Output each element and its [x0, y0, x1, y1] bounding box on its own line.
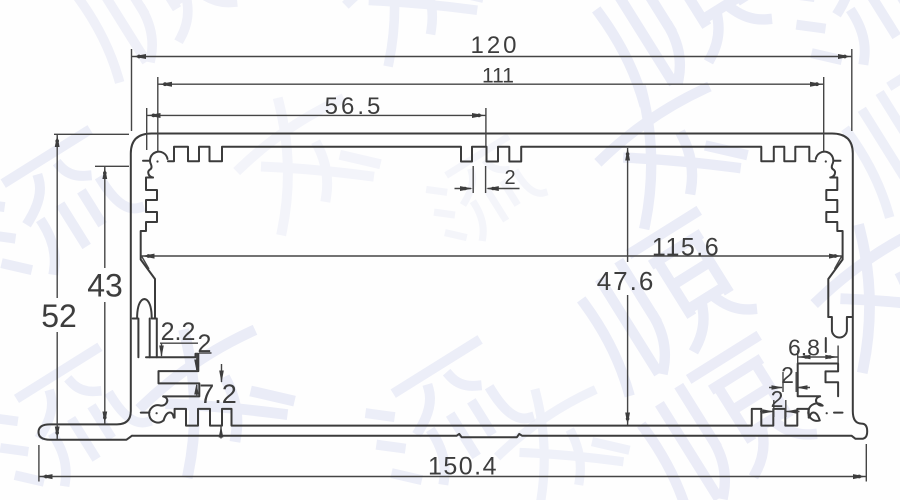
svg-text:111: 111	[482, 65, 514, 88]
svg-text:150.4: 150.4	[428, 453, 498, 481]
svg-text:6.8: 6.8	[788, 335, 820, 361]
svg-text:2: 2	[198, 330, 212, 358]
svg-text:52: 52	[41, 298, 77, 334]
svg-text:7.2: 7.2	[199, 379, 237, 409]
svg-text:47.6: 47.6	[597, 266, 656, 296]
svg-text:43: 43	[87, 268, 123, 304]
svg-text:115.6: 115.6	[652, 234, 720, 262]
svg-text:2: 2	[781, 362, 794, 388]
svg-text:120: 120	[470, 32, 519, 59]
svg-text:2: 2	[504, 167, 515, 189]
svg-text:2: 2	[771, 386, 784, 412]
svg-text:2.2: 2.2	[161, 318, 196, 346]
svg-text:56.5: 56.5	[325, 93, 384, 120]
